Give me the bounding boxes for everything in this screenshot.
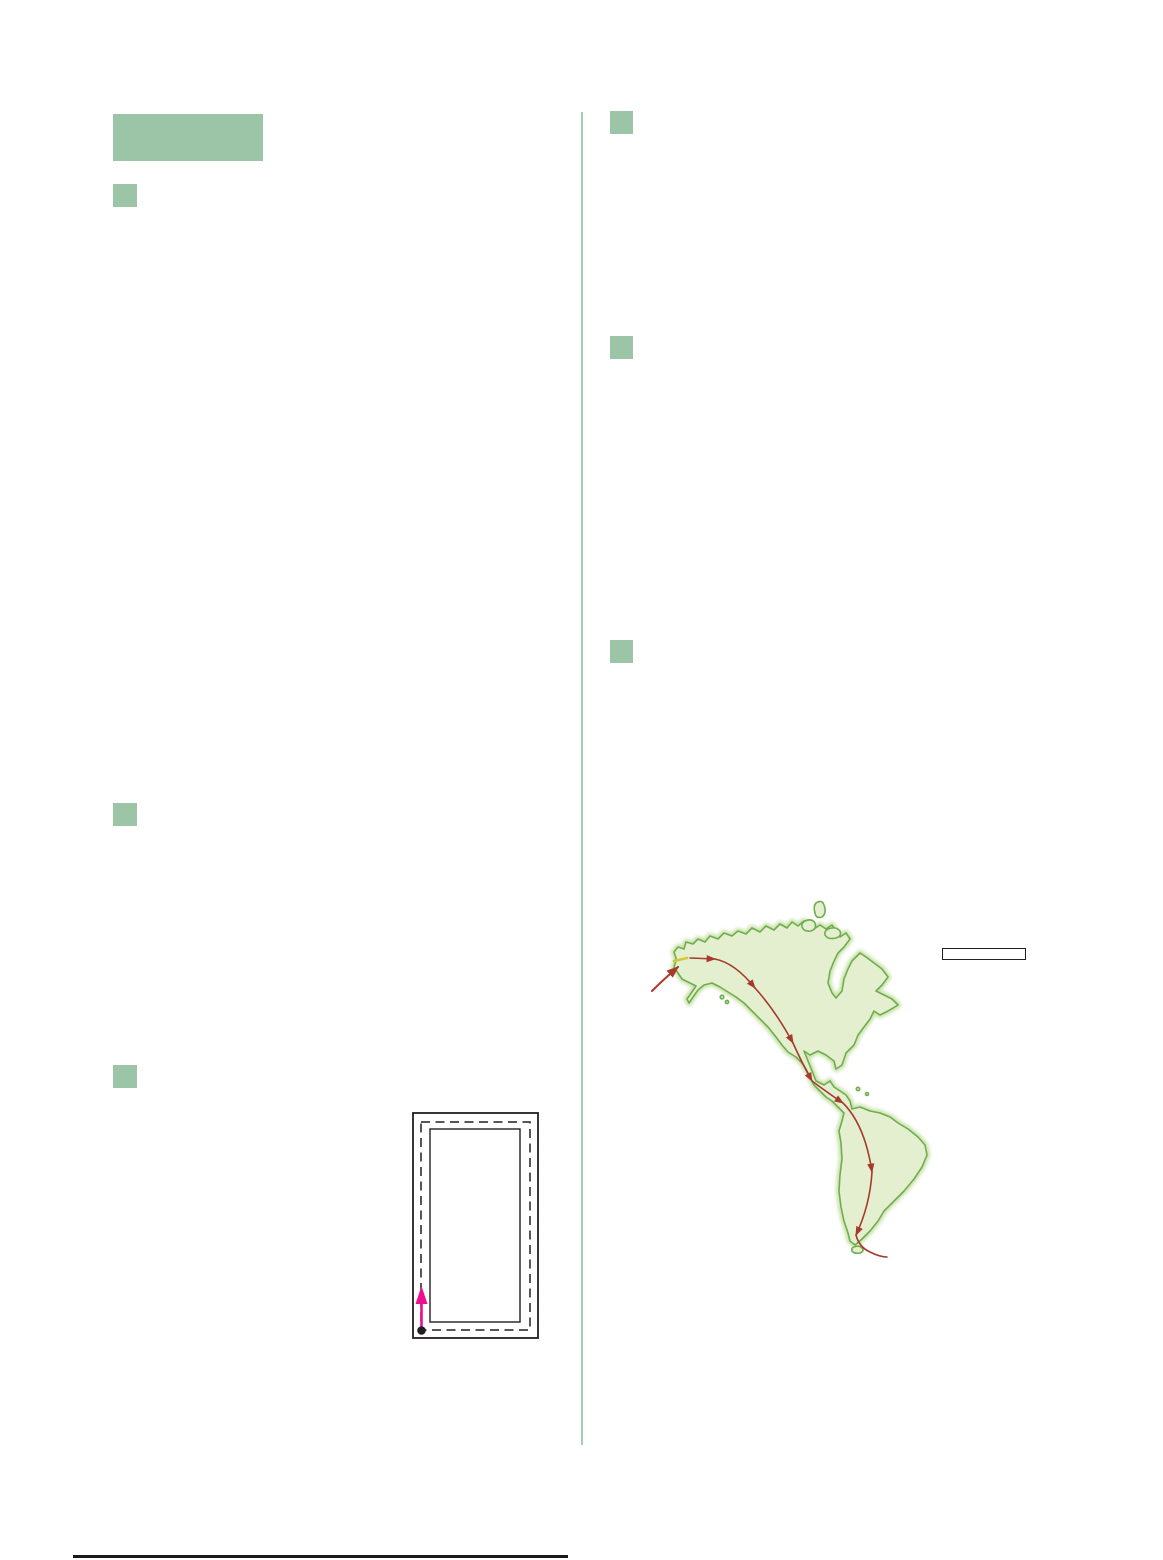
item-marker [113,1065,137,1088]
diagram-inner-rectangle [430,1129,520,1322]
up-arrow-icon [416,1286,428,1304]
start-point-dot [417,1326,426,1335]
arctic-island [802,920,816,931]
item-marker [610,640,633,663]
nested-page-margins-diagram [400,1105,550,1355]
section-header-block [113,114,263,161]
item-marker [113,184,137,207]
arctic-island [814,901,825,917]
diagram-dashed-rectangle [421,1122,530,1330]
item-marker [610,111,633,134]
arctic-island [825,928,841,939]
americas-migration-route-map [630,895,940,1270]
caribbean-island [866,1093,869,1096]
coastal-island [725,1000,728,1003]
tierra-del-fuego-island [852,1246,863,1253]
diagram-outer-rectangle [413,1113,538,1338]
worksheet-page [0,0,1163,1560]
route-entry-arrow [652,967,678,991]
coastal-island [720,995,724,999]
caribbean-island [856,1087,859,1090]
column-divider-line [581,112,583,1445]
item-marker [610,336,633,359]
item-marker [113,803,137,826]
footer-rule-line [73,1555,568,1558]
map-label-box [942,948,1026,960]
americas-landmass [674,921,927,1245]
route-segment [690,958,715,959]
